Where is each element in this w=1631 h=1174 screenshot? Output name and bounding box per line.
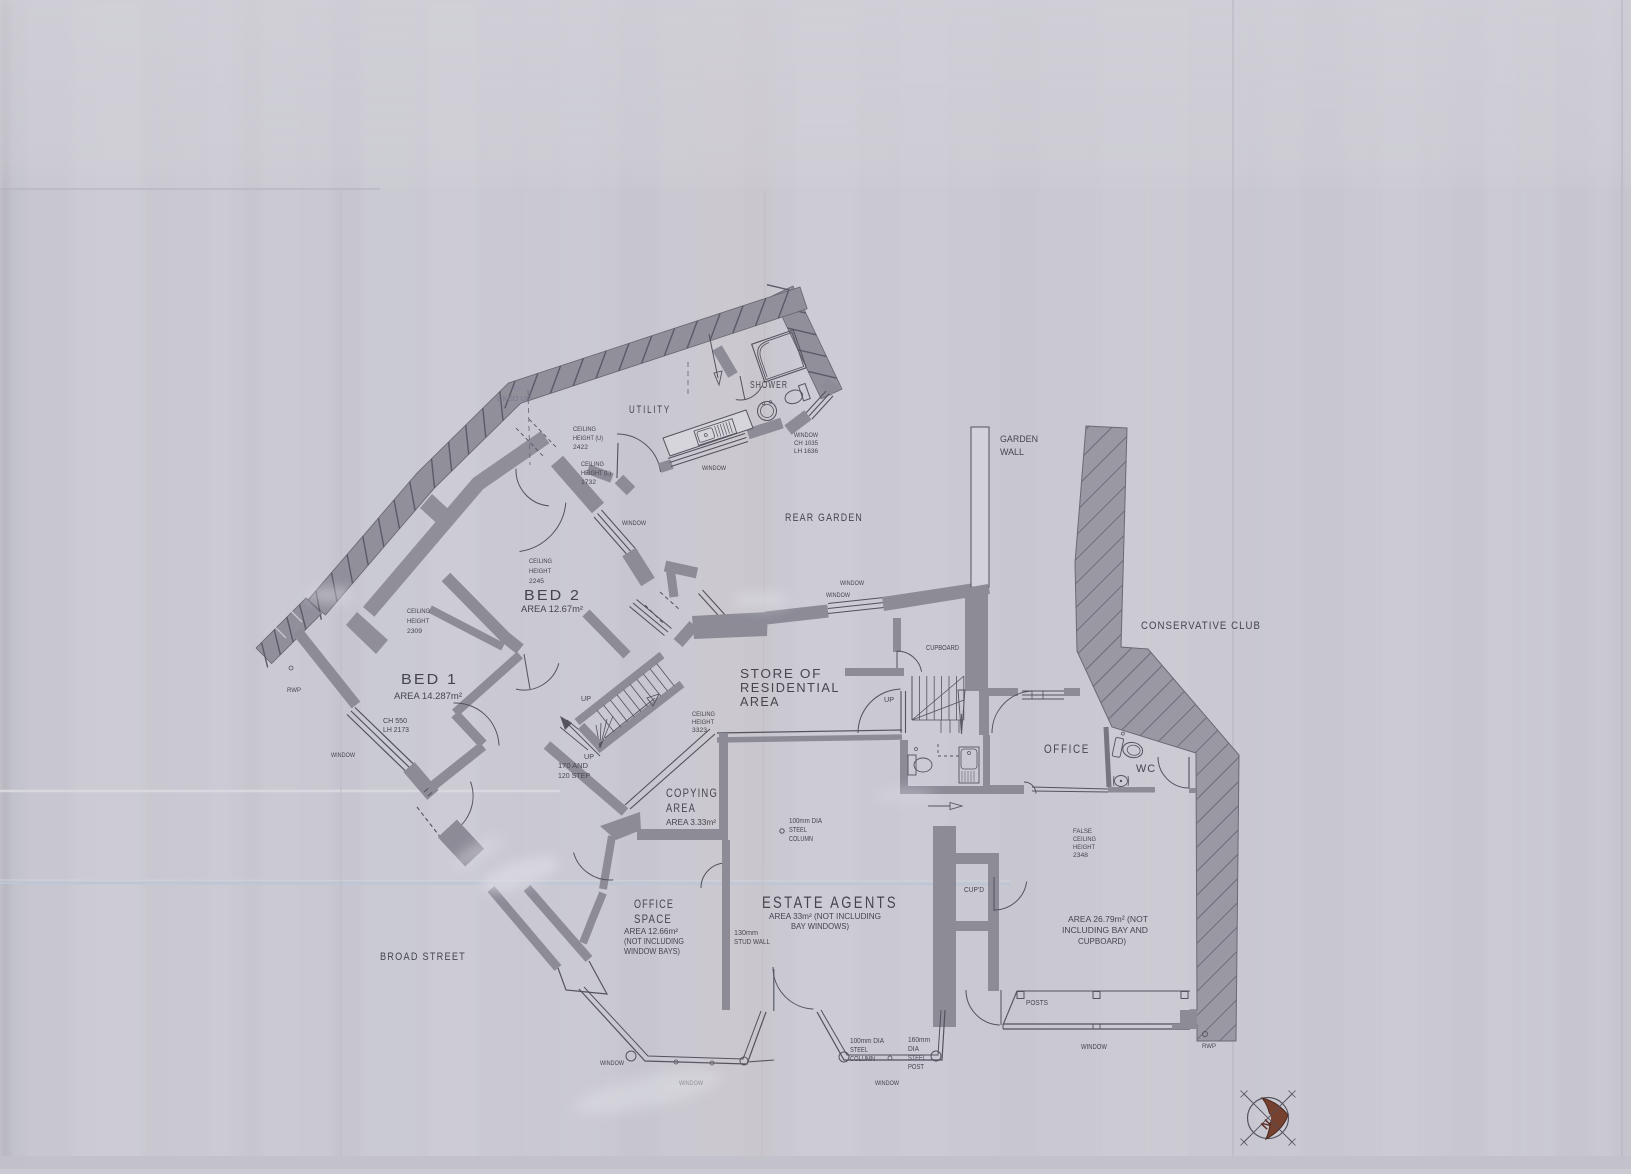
svg-text:BAY WINDOWS): BAY WINDOWS) bbox=[791, 922, 849, 931]
svg-text:STUD WALL: STUD WALL bbox=[734, 937, 770, 946]
svg-text:STEEL: STEEL bbox=[908, 1055, 926, 1062]
svg-text:AREA 14.287m²: AREA 14.287m² bbox=[394, 691, 462, 702]
svg-text:SHOWER: SHOWER bbox=[750, 380, 788, 391]
svg-text:CEILING: CEILING bbox=[407, 608, 430, 615]
svg-text:AREA 33m² (NOT INCLUDING: AREA 33m² (NOT INCLUDING bbox=[769, 912, 881, 921]
svg-text:WC: WC bbox=[1136, 763, 1156, 775]
svg-text:AREA 12.67m²: AREA 12.67m² bbox=[521, 604, 583, 614]
svg-text:WINDOW: WINDOW bbox=[600, 1060, 625, 1067]
svg-text:DIA: DIA bbox=[908, 1046, 919, 1053]
svg-text:HEIGHT: HEIGHT bbox=[529, 568, 551, 575]
svg-text:UTILITY: UTILITY bbox=[629, 404, 671, 416]
svg-text:BROAD STREET: BROAD STREET bbox=[380, 951, 466, 963]
svg-text:AREA 26.79m² (NOT: AREA 26.79m² (NOT bbox=[1068, 914, 1148, 924]
svg-text:COLUMN: COLUMN bbox=[789, 836, 813, 843]
svg-text:2348: 2348 bbox=[1073, 852, 1088, 859]
svg-text:CEILING: CEILING bbox=[581, 461, 604, 468]
svg-text:CUPBOARD): CUPBOARD) bbox=[1078, 936, 1126, 946]
svg-text:130mm: 130mm bbox=[734, 928, 758, 937]
svg-text:WINDOW: WINDOW bbox=[826, 592, 851, 599]
svg-text:BED 1: BED 1 bbox=[401, 671, 458, 688]
svg-text:WALL: WALL bbox=[1000, 447, 1024, 458]
svg-text:160mm: 160mm bbox=[908, 1037, 930, 1044]
svg-text:HEIGHT (U): HEIGHT (U) bbox=[573, 435, 603, 442]
svg-text:CONSERVATIVE CLUB: CONSERVATIVE CLUB bbox=[1141, 620, 1261, 632]
svg-text:2422: 2422 bbox=[573, 444, 588, 451]
svg-text:CH 1035: CH 1035 bbox=[794, 440, 818, 447]
svg-text:UP: UP bbox=[584, 754, 594, 761]
svg-text:WINDOW: WINDOW bbox=[1081, 1044, 1107, 1051]
svg-text:UP: UP bbox=[884, 697, 894, 704]
svg-text:UP: UP bbox=[581, 696, 591, 703]
svg-text:OFFICE: OFFICE bbox=[1044, 742, 1090, 756]
svg-text:AREA: AREA bbox=[666, 801, 696, 815]
svg-text:2309: 2309 bbox=[407, 628, 422, 635]
svg-text:FALSE: FALSE bbox=[1073, 828, 1093, 835]
svg-text:CUP'D: CUP'D bbox=[964, 887, 984, 894]
svg-text:HEIGHT (L): HEIGHT (L) bbox=[581, 470, 611, 477]
svg-text:POST: POST bbox=[908, 1064, 925, 1071]
svg-text:STORE OF: STORE OF bbox=[740, 666, 822, 681]
svg-text:LH 1636: LH 1636 bbox=[794, 448, 818, 455]
svg-text:WINDOW: WINDOW bbox=[794, 432, 819, 439]
svg-text:STEEL: STEEL bbox=[850, 1047, 868, 1054]
svg-text:POSTS: POSTS bbox=[1026, 1000, 1048, 1007]
svg-text:RESIDENTIAL: RESIDENTIAL bbox=[740, 680, 840, 695]
svg-text:CEILING: CEILING bbox=[573, 426, 596, 433]
svg-text:2245: 2245 bbox=[529, 578, 544, 585]
svg-text:INCLUDING BAY AND: INCLUDING BAY AND bbox=[1062, 925, 1148, 935]
svg-text:(NOT INCLUDING: (NOT INCLUDING bbox=[624, 937, 684, 946]
svg-text:COPYING: COPYING bbox=[666, 786, 718, 800]
svg-text:AREA 3.33m²: AREA 3.33m² bbox=[666, 818, 716, 827]
svg-text:RWP: RWP bbox=[1202, 1043, 1216, 1050]
svg-text:WINDOW: WINDOW bbox=[331, 752, 356, 759]
svg-text:3323: 3323 bbox=[692, 727, 707, 734]
svg-text:100mm DIA: 100mm DIA bbox=[850, 1038, 884, 1045]
svg-text:LH 2173: LH 2173 bbox=[383, 727, 409, 734]
svg-text:WINDOW: WINDOW bbox=[840, 580, 865, 587]
svg-text:STEEL: STEEL bbox=[789, 827, 807, 834]
svg-text:CEILING: CEILING bbox=[529, 558, 552, 565]
svg-text:120 STEP: 120 STEP bbox=[558, 771, 590, 780]
svg-text:100mm DIA: 100mm DIA bbox=[789, 818, 822, 825]
svg-text:HEIGHT: HEIGHT bbox=[692, 719, 714, 726]
svg-text:RWP: RWP bbox=[287, 687, 301, 694]
svg-text:170 AND: 170 AND bbox=[558, 761, 589, 770]
svg-text:AY: AY bbox=[512, 386, 522, 393]
svg-text:REAR GARDEN: REAR GARDEN bbox=[785, 512, 863, 524]
svg-text:WINDOW: WINDOW bbox=[875, 1080, 900, 1087]
svg-text:COLUMN: COLUMN bbox=[850, 1056, 875, 1063]
svg-text:CH 550: CH 550 bbox=[383, 718, 407, 725]
svg-text:WINDOW BAYS): WINDOW BAYS) bbox=[624, 947, 680, 956]
svg-text:ESTATE AGENTS: ESTATE AGENTS bbox=[762, 893, 898, 912]
svg-text:CKED UP: CKED UP bbox=[497, 394, 531, 403]
svg-text:WINDOW: WINDOW bbox=[702, 465, 727, 472]
svg-text:BED 2: BED 2 bbox=[524, 587, 581, 604]
svg-text:HEIGHT: HEIGHT bbox=[407, 618, 429, 625]
svg-text:GARDEN: GARDEN bbox=[1000, 434, 1038, 445]
svg-text:AREA: AREA bbox=[740, 694, 780, 709]
svg-text:1732: 1732 bbox=[581, 479, 596, 486]
svg-text:CUPBOARD: CUPBOARD bbox=[926, 645, 959, 652]
svg-text:HEIGHT: HEIGHT bbox=[1073, 844, 1095, 851]
svg-text:AREA 12.66m²: AREA 12.66m² bbox=[624, 927, 678, 936]
svg-text:OFFICE: OFFICE bbox=[634, 897, 674, 911]
svg-text:CEILING: CEILING bbox=[1073, 836, 1096, 843]
svg-text:WINDOW: WINDOW bbox=[622, 520, 647, 527]
svg-text:SPACE: SPACE bbox=[634, 912, 672, 926]
svg-text:CEILING: CEILING bbox=[692, 711, 715, 718]
